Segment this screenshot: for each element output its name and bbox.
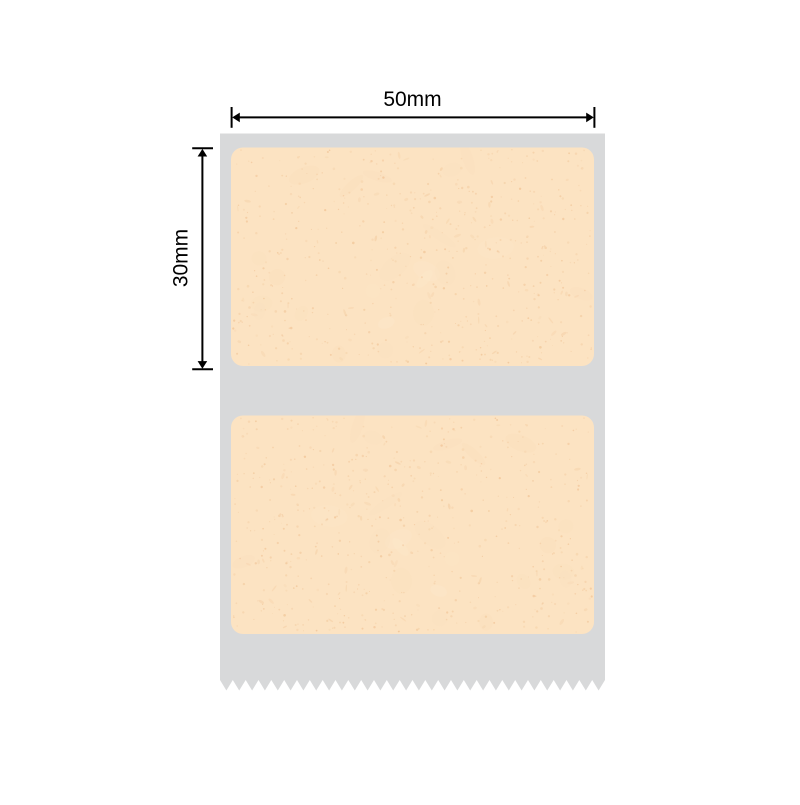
svg-text:50mm: 50mm	[383, 88, 441, 111]
svg-text:30mm: 30mm	[170, 229, 193, 287]
